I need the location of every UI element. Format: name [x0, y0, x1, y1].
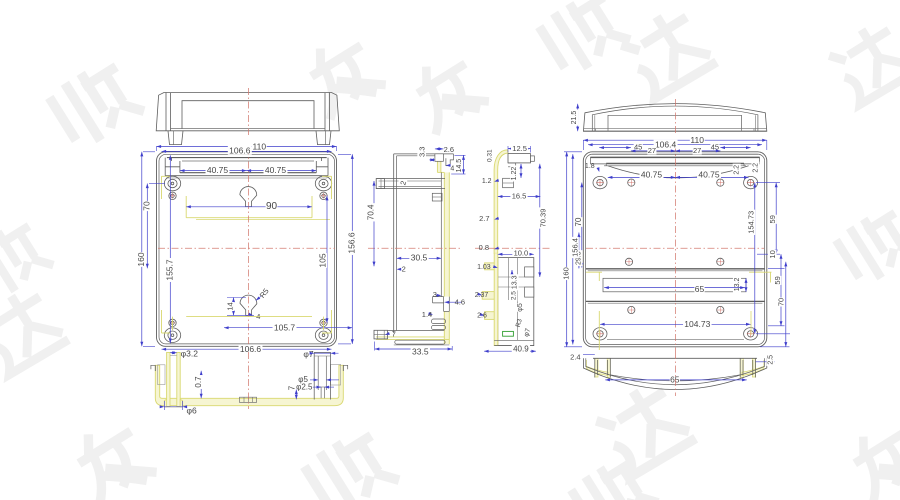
- svg-text:59: 59: [773, 276, 782, 284]
- svg-text:2.6: 2.6: [477, 312, 487, 319]
- svg-text:4.6: 4.6: [455, 298, 465, 307]
- svg-text:160: 160: [562, 267, 571, 280]
- svg-text:2.37: 2.37: [475, 292, 489, 299]
- svg-text:14: 14: [226, 302, 235, 310]
- svg-text:3: 3: [433, 290, 437, 299]
- svg-text:40.75: 40.75: [265, 165, 287, 175]
- svg-text:90: 90: [266, 201, 278, 212]
- svg-text:110: 110: [690, 135, 704, 145]
- svg-text:1.8: 1.8: [585, 163, 595, 170]
- svg-text:21.5: 21.5: [571, 111, 578, 125]
- svg-text:70: 70: [574, 217, 583, 226]
- svg-text:105: 105: [318, 253, 328, 267]
- svg-text:0.8: 0.8: [479, 243, 489, 252]
- svg-text:7: 7: [392, 330, 396, 339]
- svg-text:1.22: 1.22: [511, 167, 518, 181]
- svg-text:27: 27: [693, 146, 701, 155]
- svg-text:2: 2: [402, 265, 406, 274]
- svg-text:154.73: 154.73: [747, 211, 756, 234]
- svg-text:2.5: 2.5: [510, 291, 517, 300]
- svg-text:14.5: 14.5: [456, 159, 463, 173]
- svg-text:27: 27: [648, 146, 656, 155]
- svg-text:40.75: 40.75: [698, 169, 720, 179]
- svg-text:105.7: 105.7: [274, 323, 296, 333]
- svg-text:φ7: φ7: [303, 349, 314, 359]
- svg-text:2.7: 2.7: [479, 214, 489, 223]
- svg-text:70.4: 70.4: [367, 204, 376, 220]
- svg-text:13.3: 13.3: [511, 275, 518, 289]
- svg-text:30.5: 30.5: [411, 253, 428, 263]
- svg-text:70: 70: [142, 201, 152, 211]
- svg-text:65: 65: [670, 375, 680, 385]
- svg-text:155.7: 155.7: [165, 259, 175, 281]
- svg-text:4: 4: [450, 165, 454, 172]
- svg-text:10.0: 10.0: [514, 249, 529, 258]
- svg-text:φ3.2: φ3.2: [181, 348, 199, 358]
- svg-text:φ5: φ5: [517, 303, 524, 312]
- svg-text:156.4: 156.4: [570, 238, 579, 257]
- svg-text:0.7: 0.7: [194, 376, 203, 388]
- svg-text:2.2: 2.2: [752, 163, 759, 173]
- svg-text:2.6: 2.6: [444, 145, 454, 154]
- svg-text:33.5: 33.5: [412, 347, 429, 357]
- svg-text:2.4: 2.4: [570, 353, 580, 362]
- svg-text:106.4: 106.4: [655, 139, 677, 149]
- svg-text:7: 7: [288, 385, 297, 390]
- svg-text:3.3: 3.3: [418, 147, 427, 157]
- svg-text:1.03: 1.03: [477, 264, 491, 271]
- svg-text:1.2: 1.2: [482, 178, 492, 185]
- svg-text:10: 10: [768, 250, 777, 258]
- svg-text:φ2.5: φ2.5: [296, 383, 313, 392]
- svg-text:160: 160: [136, 252, 146, 266]
- svg-text:59: 59: [768, 215, 777, 223]
- svg-text:1.4: 1.4: [422, 310, 432, 319]
- svg-text:2.2: 2.2: [734, 165, 741, 175]
- svg-text:65: 65: [695, 284, 705, 294]
- svg-text:110: 110: [253, 141, 267, 151]
- svg-text:106.6: 106.6: [229, 145, 251, 155]
- svg-text:φ6: φ6: [187, 405, 198, 415]
- svg-text:156.6: 156.6: [347, 232, 357, 254]
- svg-text:12.5: 12.5: [512, 144, 527, 153]
- svg-text:70.39: 70.39: [538, 209, 547, 228]
- svg-text:13.2: 13.2: [734, 277, 741, 291]
- svg-text:106.6: 106.6: [240, 344, 262, 354]
- svg-text:16.5: 16.5: [512, 191, 527, 200]
- svg-text:0.31: 0.31: [486, 149, 493, 162]
- svg-text:40.75: 40.75: [207, 165, 229, 175]
- svg-text:40.75: 40.75: [641, 169, 663, 179]
- svg-text:104.73: 104.73: [684, 319, 710, 329]
- svg-text:2.5: 2.5: [767, 355, 774, 365]
- svg-text:70: 70: [777, 298, 786, 306]
- svg-text:40.9: 40.9: [513, 345, 529, 354]
